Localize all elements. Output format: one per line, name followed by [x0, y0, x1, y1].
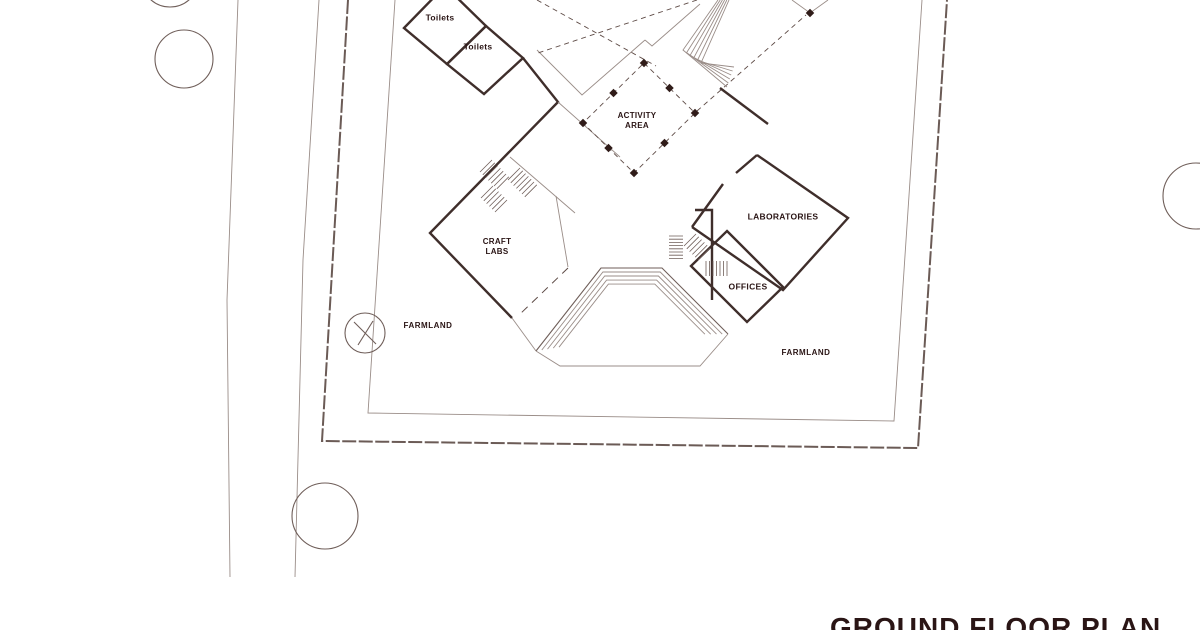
laboratories-walls — [692, 155, 848, 290]
room-label-craft-labs: CRAFT LABS — [483, 237, 512, 257]
room-label-toilets-2: Toilets — [464, 42, 493, 53]
site-label-farmland-left: FARMLAND — [404, 321, 453, 331]
tree-icon — [292, 483, 358, 549]
stairs-craft-labs — [480, 160, 537, 212]
road-edge-lines — [227, 0, 319, 577]
floor-plan-drawing — [0, 0, 1200, 630]
floor-plan-page: Toilets Toilets ACTIVITY AREA CRAFT LABS… — [0, 0, 1200, 630]
craft-labs-walls — [430, 58, 568, 351]
tree-icon — [155, 30, 213, 88]
tree-icons — [141, 0, 1200, 549]
room-label-toilets-1: Toilets — [426, 13, 455, 24]
drawing-title: GROUND FLOOR PLAN — [830, 612, 1161, 630]
room-label-laboratories: LABORATORIES — [748, 212, 819, 223]
steps-chevron — [683, 0, 768, 124]
tree-marker-icon — [345, 313, 385, 353]
room-label-activity-area: ACTIVITY AREA — [618, 111, 657, 131]
amphitheatre-steps — [536, 268, 728, 366]
site-boundary-outer — [322, 0, 947, 448]
entry-hall — [537, 0, 700, 95]
site-label-farmland-right: FARMLAND — [782, 348, 831, 358]
walkway-lines — [510, 102, 620, 213]
tree-icon — [141, 0, 199, 7]
room-label-offices: OFFICES — [729, 282, 768, 293]
tree-icon — [1163, 163, 1200, 229]
offices-walls — [691, 231, 783, 322]
